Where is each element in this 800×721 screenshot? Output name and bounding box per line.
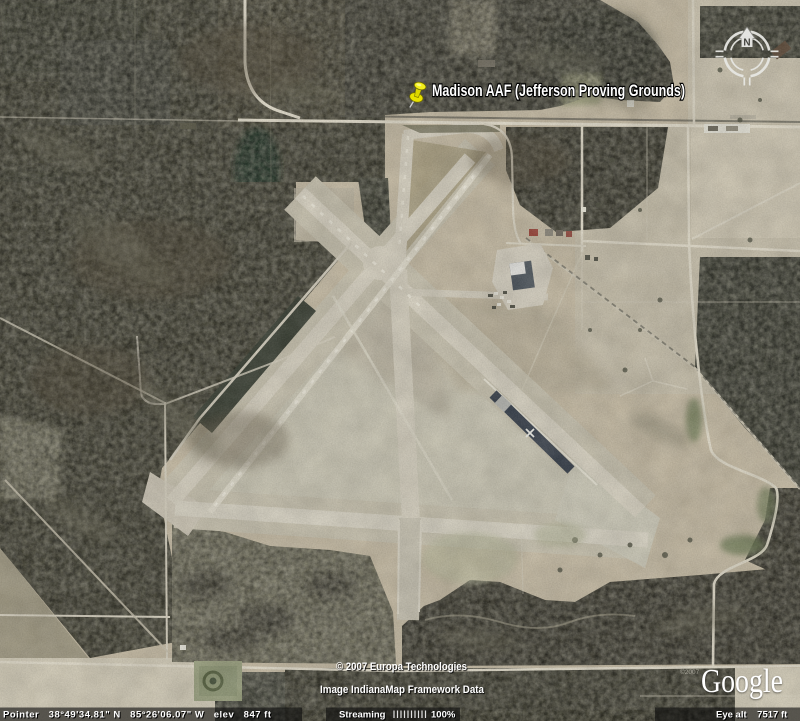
svg-text:Image IndianaMap Framework Dat: Image IndianaMap Framework Data [320, 684, 485, 696]
svg-text:Google: Google [701, 663, 783, 700]
svg-text:Pointer 38°49'34.81" N 85°: Pointer 38°49'34.81" N 85°26'06.07" W el… [3, 710, 272, 721]
svg-text:Eye alt 7517 ft: Eye alt 7517 ft [716, 710, 788, 721]
svg-text:© 2007 Europa Technologies: © 2007 Europa Technologies [336, 661, 467, 673]
svg-text:©2007: ©2007 [680, 668, 700, 676]
svg-text:Madison AAF (Jefferson Proving: Madison AAF (Jefferson Proving Grounds) [432, 81, 685, 100]
svg-text:N: N [743, 38, 750, 49]
svg-text:Streaming: Streaming [339, 710, 386, 721]
svg-text:100%: 100% [431, 710, 456, 721]
